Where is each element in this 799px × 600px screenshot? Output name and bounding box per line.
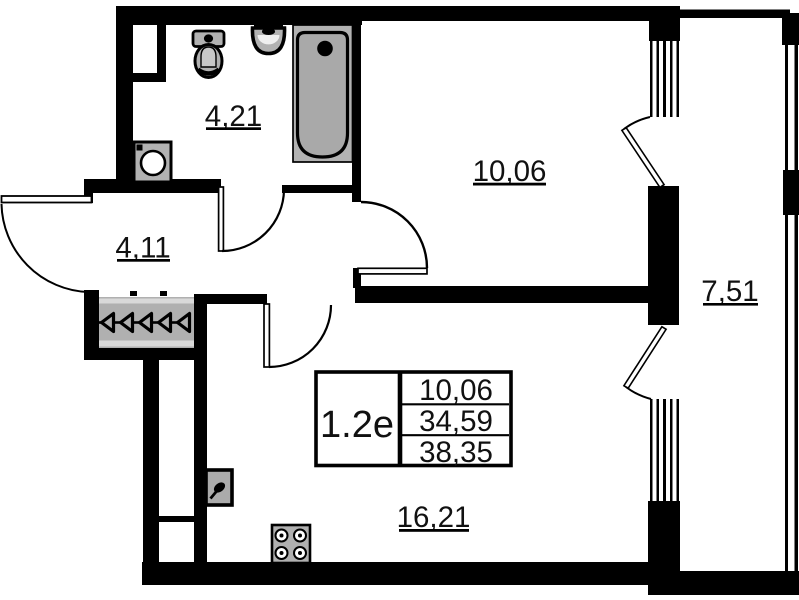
svg-text:38,35: 38,35 bbox=[419, 436, 493, 469]
svg-text:34,59: 34,59 bbox=[419, 405, 493, 438]
svg-text:10,06: 10,06 bbox=[419, 374, 493, 407]
svg-text:1.2e: 1.2e bbox=[320, 404, 394, 446]
